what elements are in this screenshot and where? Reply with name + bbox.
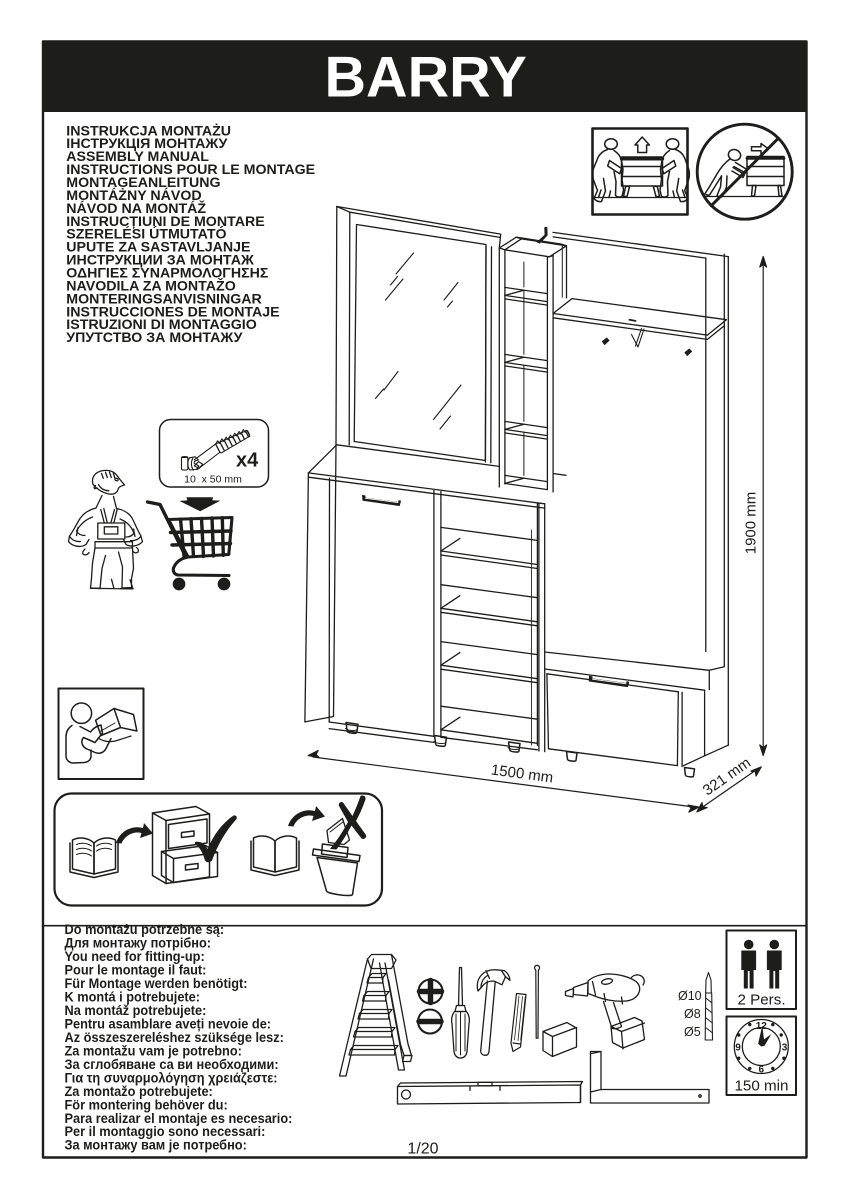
svg-text:9: 9 [735, 1043, 741, 1054]
svg-text:1500 mm: 1500 mm [490, 761, 554, 786]
svg-text:6: 6 [759, 1065, 765, 1076]
svg-text:3: 3 [782, 1043, 788, 1054]
svg-text:BARRY: BARRY [325, 46, 527, 110]
svg-text:Ø5: Ø5 [684, 1025, 701, 1039]
svg-text:За монтажу вам је потребно:: За монтажу вам је потребно: [65, 1137, 247, 1153]
svg-text:x4: x4 [236, 450, 259, 472]
svg-text:УПУТСТВО ЗА МОНТАЖУ: УПУТСТВО ЗА МОНТАЖУ [66, 330, 242, 346]
svg-text:Ø8: Ø8 [684, 1007, 701, 1021]
svg-text:1900 mm: 1900 mm [743, 492, 760, 555]
svg-text:2 Pers.: 2 Pers. [737, 992, 785, 1009]
svg-text:1/20: 1/20 [407, 1141, 438, 1158]
svg-text:Ø10: Ø10 [678, 989, 702, 1003]
svg-text:10 x 50 mm: 10 x 50 mm [184, 474, 242, 486]
svg-text:150 min: 150 min [734, 1078, 788, 1095]
